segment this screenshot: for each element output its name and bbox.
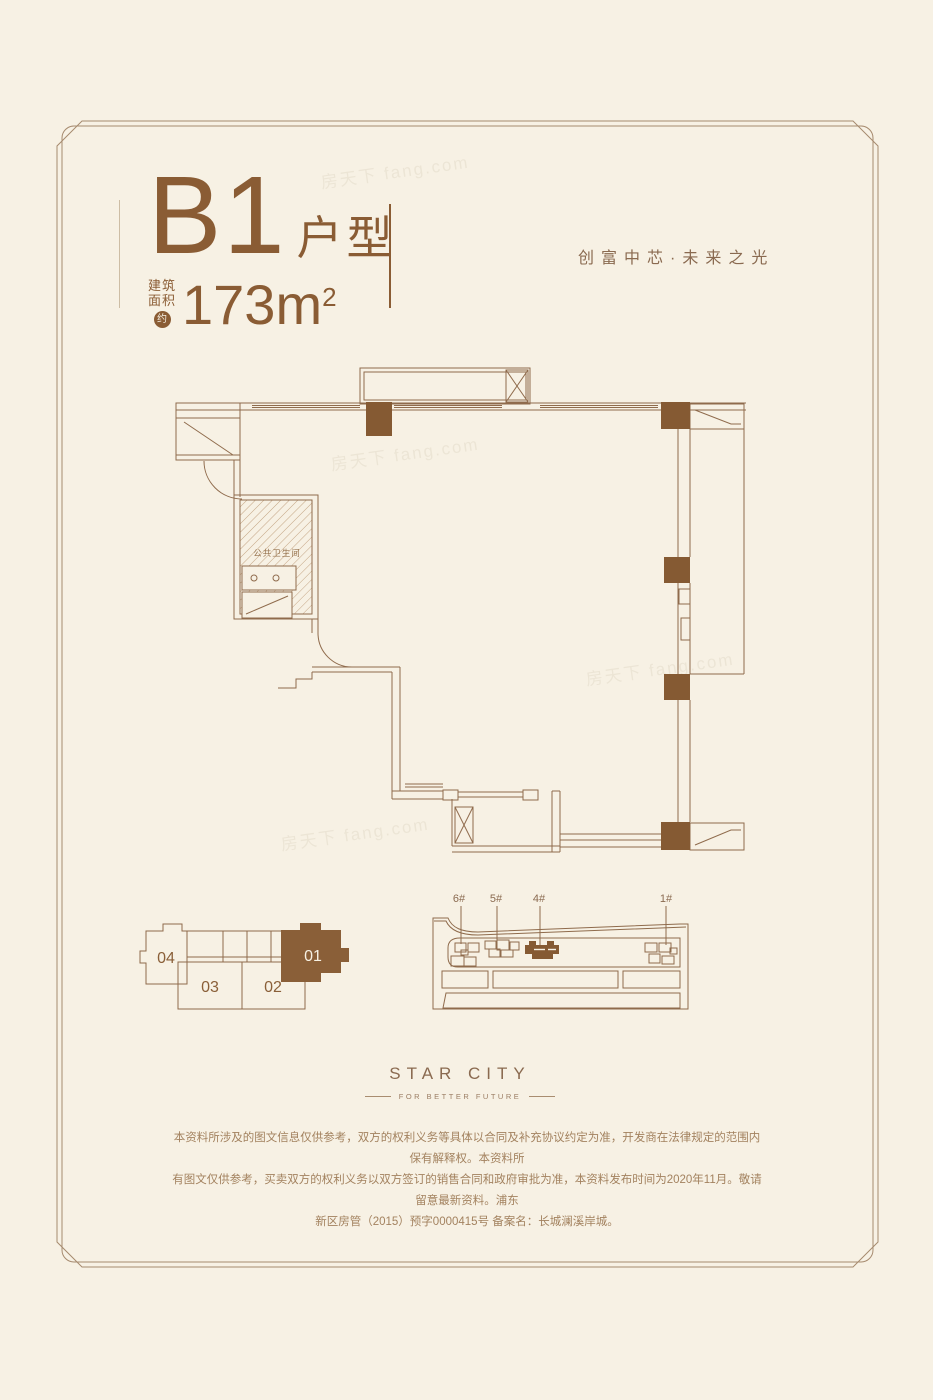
- left-divider-line: [119, 200, 120, 308]
- title-block: B1 户型 建筑 面积 约 173m2: [148, 168, 408, 330]
- building-6-label: 6#: [453, 893, 466, 905]
- building-6-footprint: [451, 943, 479, 966]
- building-1-label: 1#: [660, 893, 673, 905]
- area-superscript: 2: [322, 282, 336, 312]
- structural-columns: [366, 402, 690, 850]
- brand-name: STAR CITY: [360, 1064, 560, 1084]
- unit-02-label: 02: [264, 979, 282, 996]
- approx-badge: 约: [154, 311, 171, 328]
- area-number: 173m: [182, 273, 322, 336]
- unit-04-label: 04: [157, 950, 175, 967]
- floor-plan: 公共卫生间: [170, 360, 750, 860]
- disclaimer-line-3: 新区房管（2015）预字0000415号 备案名：长城澜溪岸城。: [172, 1212, 762, 1233]
- disclaimer-line-2: 有图文仅供参考，买卖双方的权利义务以双方签订的销售合同和政府审批为准，本资料发布…: [172, 1170, 762, 1212]
- site-plan: 6# 5# 4# 1#: [428, 888, 698, 1015]
- building-4-label: 4#: [533, 893, 546, 905]
- area-value: 173m2: [182, 280, 337, 330]
- right-divider-line: [389, 204, 391, 308]
- stair-room: [176, 403, 242, 499]
- unit-01-label: 01: [304, 948, 322, 965]
- area-label-line1: 建筑: [148, 278, 176, 293]
- lower-walls: [278, 619, 661, 852]
- floorplan-poster-page: 房天下 fang.com 房天下 fang.com 房天下 fang.com 房…: [0, 0, 933, 1400]
- building-1-footprint: [645, 943, 677, 964]
- tagline: 创富中芯·未来之光: [578, 244, 774, 268]
- brand-slogan-row: FOR BETTER FUTURE: [360, 1092, 560, 1101]
- area-label-line2: 面积: [148, 293, 176, 308]
- right-wall: [678, 404, 744, 850]
- brand-slogan: FOR BETTER FUTURE: [399, 1092, 522, 1101]
- top-bay-window: [360, 368, 530, 404]
- area-prefix: 建筑 面积 约: [148, 278, 176, 330]
- slogan-right-dash: [529, 1096, 555, 1097]
- unit-03-label: 03: [201, 979, 219, 996]
- building-5-footprint: [485, 940, 519, 957]
- disclaimer: 本资料所涉及的图文信息仅供参考，双方的权利义务等具体以合同及补充协议约定为准，开…: [172, 1128, 762, 1233]
- building-5-label: 5#: [490, 893, 503, 905]
- unit-type-label: 户型: [297, 212, 397, 264]
- disclaimer-line-1: 本资料所涉及的图文信息仅供参考，双方的权利义务等具体以合同及补充协议约定为准，开…: [172, 1128, 762, 1170]
- area-row: 建筑 面积 约 173m2: [148, 278, 408, 330]
- unit-key-plan: 04 03 02 01: [133, 912, 365, 1012]
- slogan-left-dash: [365, 1096, 391, 1097]
- brand-logo: STAR CITY FOR BETTER FUTURE: [360, 1064, 560, 1101]
- unit-code: B1: [148, 168, 287, 264]
- bathroom-label: 公共卫生间: [253, 548, 301, 558]
